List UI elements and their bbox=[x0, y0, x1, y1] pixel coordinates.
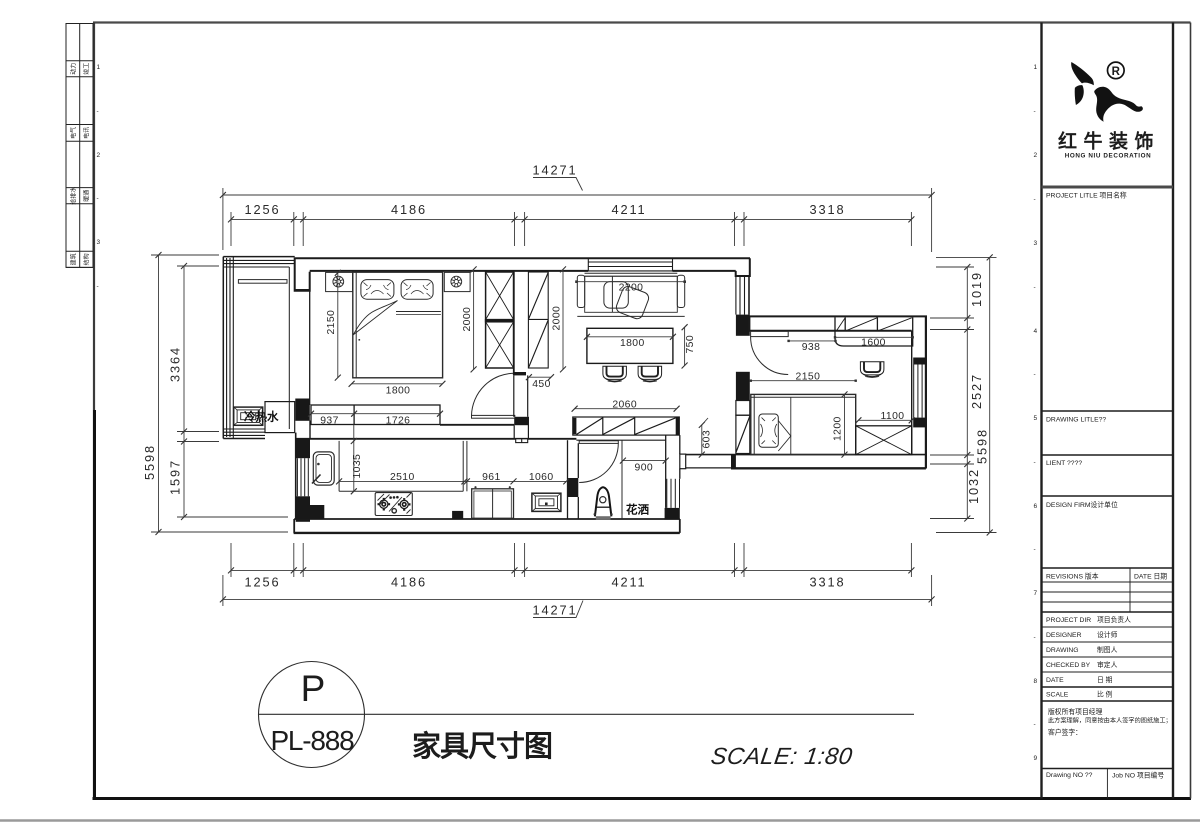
svg-text:-: - bbox=[1034, 371, 1036, 378]
svg-text:3364: 3364 bbox=[168, 346, 183, 382]
svg-text:DATE 日期: DATE 日期 bbox=[1134, 573, 1167, 581]
svg-text:900: 900 bbox=[635, 463, 654, 474]
svg-text:竣工: 竣工 bbox=[83, 63, 91, 75]
svg-text:CHECKED BY: CHECKED BY bbox=[1046, 662, 1091, 669]
svg-text:1: 1 bbox=[1034, 64, 1038, 71]
svg-text:938: 938 bbox=[802, 342, 821, 353]
svg-text:客户签字：: 客户签字： bbox=[1048, 728, 1082, 737]
svg-text:-: - bbox=[1034, 634, 1036, 641]
svg-text:冷热水: 冷热水 bbox=[244, 410, 279, 424]
svg-text:937: 937 bbox=[320, 415, 339, 426]
svg-text:LIENT ????: LIENT ???? bbox=[1046, 460, 1082, 467]
svg-text:比 例: 比 例 bbox=[1097, 690, 1113, 699]
svg-text:结构: 结构 bbox=[83, 253, 91, 265]
svg-text:4186: 4186 bbox=[391, 575, 427, 590]
svg-text:1035: 1035 bbox=[352, 454, 363, 479]
svg-text:603: 603 bbox=[702, 430, 713, 449]
svg-text:REVISIONS 版本: REVISIONS 版本 bbox=[1046, 572, 1099, 581]
svg-text:3318: 3318 bbox=[809, 575, 845, 590]
svg-text:1019: 1019 bbox=[969, 271, 984, 307]
svg-text:4211: 4211 bbox=[611, 575, 646, 590]
svg-text:2060: 2060 bbox=[612, 399, 637, 410]
svg-text:审定人: 审定人 bbox=[1097, 660, 1118, 669]
svg-text:9: 9 bbox=[1034, 755, 1038, 762]
svg-text:4: 4 bbox=[1034, 328, 1038, 335]
svg-text:-: - bbox=[1034, 196, 1036, 203]
svg-text:此方案理解，同意按由本人签字的图纸施工；: 此方案理解，同意按由本人签字的图纸施工； bbox=[1048, 717, 1172, 725]
svg-text:1060: 1060 bbox=[529, 472, 554, 483]
svg-text:1256: 1256 bbox=[244, 575, 280, 590]
svg-text:日 期: 日 期 bbox=[1097, 676, 1113, 684]
svg-text:PL-888: PL-888 bbox=[270, 725, 354, 756]
svg-text:1726: 1726 bbox=[386, 415, 411, 426]
svg-text:项目负责人: 项目负责人 bbox=[1097, 615, 1131, 624]
svg-text:1: 1 bbox=[97, 64, 101, 71]
svg-text:电气: 电气 bbox=[70, 127, 78, 139]
svg-text:14271: 14271 bbox=[532, 603, 577, 618]
svg-text:SCALE: SCALE bbox=[1046, 692, 1069, 699]
svg-text:动力: 动力 bbox=[70, 63, 78, 75]
svg-text:给排水: 给排水 bbox=[70, 187, 78, 205]
svg-text:1200: 1200 bbox=[833, 416, 844, 441]
svg-text:PROJECT LITLE 项目名称: PROJECT LITLE 项目名称 bbox=[1046, 191, 1127, 200]
svg-text:红牛装饰: 红牛装饰 bbox=[1058, 130, 1160, 153]
svg-text:Job NO 项目编号: Job NO 项目编号 bbox=[1112, 771, 1164, 780]
svg-text:1032: 1032 bbox=[966, 468, 981, 504]
svg-text:2200: 2200 bbox=[619, 282, 644, 293]
svg-text:1800: 1800 bbox=[620, 338, 645, 349]
svg-text:1100: 1100 bbox=[881, 411, 905, 422]
svg-text:-: - bbox=[1034, 284, 1036, 291]
svg-text:2: 2 bbox=[1034, 152, 1038, 159]
svg-text:6: 6 bbox=[1034, 503, 1038, 510]
svg-text:5: 5 bbox=[1034, 415, 1038, 422]
svg-text:DRAWING: DRAWING bbox=[1046, 647, 1079, 654]
svg-text:4186: 4186 bbox=[391, 202, 427, 217]
svg-text:DATE: DATE bbox=[1046, 677, 1064, 684]
svg-text:4211: 4211 bbox=[611, 202, 646, 217]
svg-text:2527: 2527 bbox=[969, 373, 984, 409]
svg-text:-: - bbox=[1034, 108, 1036, 115]
svg-text:1256: 1256 bbox=[244, 202, 280, 217]
svg-text:-: - bbox=[1034, 721, 1036, 728]
svg-text:961: 961 bbox=[482, 472, 501, 483]
svg-text:1600: 1600 bbox=[861, 338, 886, 349]
svg-text:PROJECT DIR: PROJECT DIR bbox=[1046, 617, 1091, 624]
svg-text:8: 8 bbox=[1034, 678, 1038, 685]
svg-text:制图人: 制图人 bbox=[1097, 645, 1118, 654]
svg-text:2150: 2150 bbox=[326, 310, 337, 335]
svg-text:SCALE: 1:80: SCALE: 1:80 bbox=[709, 744, 854, 770]
svg-text:DESIGN FIRM设计单位: DESIGN FIRM设计单位 bbox=[1046, 500, 1118, 509]
svg-text:-: - bbox=[97, 108, 99, 115]
svg-text:P: P bbox=[301, 668, 326, 709]
svg-text:3: 3 bbox=[97, 239, 101, 246]
svg-text:暖通: 暖通 bbox=[83, 190, 91, 202]
svg-text:750: 750 bbox=[685, 335, 696, 354]
svg-text:1800: 1800 bbox=[386, 386, 411, 397]
svg-text:3318: 3318 bbox=[809, 202, 845, 217]
svg-text:-: - bbox=[97, 195, 99, 202]
svg-text:建筑: 建筑 bbox=[70, 253, 78, 265]
svg-text:14271: 14271 bbox=[532, 163, 577, 178]
svg-text:-: - bbox=[1034, 546, 1036, 553]
svg-text:版权所有项目经理: 版权所有项目经理 bbox=[1048, 707, 1103, 716]
svg-text:电讯: 电讯 bbox=[83, 127, 91, 139]
svg-text:-: - bbox=[97, 283, 99, 290]
svg-text:2000: 2000 bbox=[552, 306, 563, 331]
svg-text:2000: 2000 bbox=[462, 307, 473, 332]
svg-text:花洒: 花洒 bbox=[626, 503, 649, 517]
svg-text:设计师: 设计师 bbox=[1097, 630, 1118, 639]
svg-text:R: R bbox=[1112, 66, 1121, 78]
svg-text:5598: 5598 bbox=[975, 428, 990, 464]
svg-text:DRAWING LITLE??: DRAWING LITLE?? bbox=[1046, 417, 1106, 424]
svg-text:-: - bbox=[1034, 459, 1036, 466]
svg-text:2: 2 bbox=[97, 152, 101, 159]
svg-text:Drawing NO ??: Drawing NO ?? bbox=[1046, 772, 1093, 779]
svg-text:1597: 1597 bbox=[168, 459, 183, 495]
svg-text:2510: 2510 bbox=[390, 472, 415, 483]
svg-text:家具尺寸图: 家具尺寸图 bbox=[412, 729, 552, 763]
svg-text:5598: 5598 bbox=[142, 444, 157, 480]
svg-text:DESIGNER: DESIGNER bbox=[1046, 632, 1082, 639]
svg-text:450: 450 bbox=[532, 379, 551, 390]
svg-text:HONG NIU DECORATION: HONG NIU DECORATION bbox=[1065, 153, 1152, 160]
svg-text:3: 3 bbox=[1034, 240, 1038, 247]
svg-text:7: 7 bbox=[1034, 590, 1038, 597]
svg-text:2150: 2150 bbox=[796, 371, 821, 382]
